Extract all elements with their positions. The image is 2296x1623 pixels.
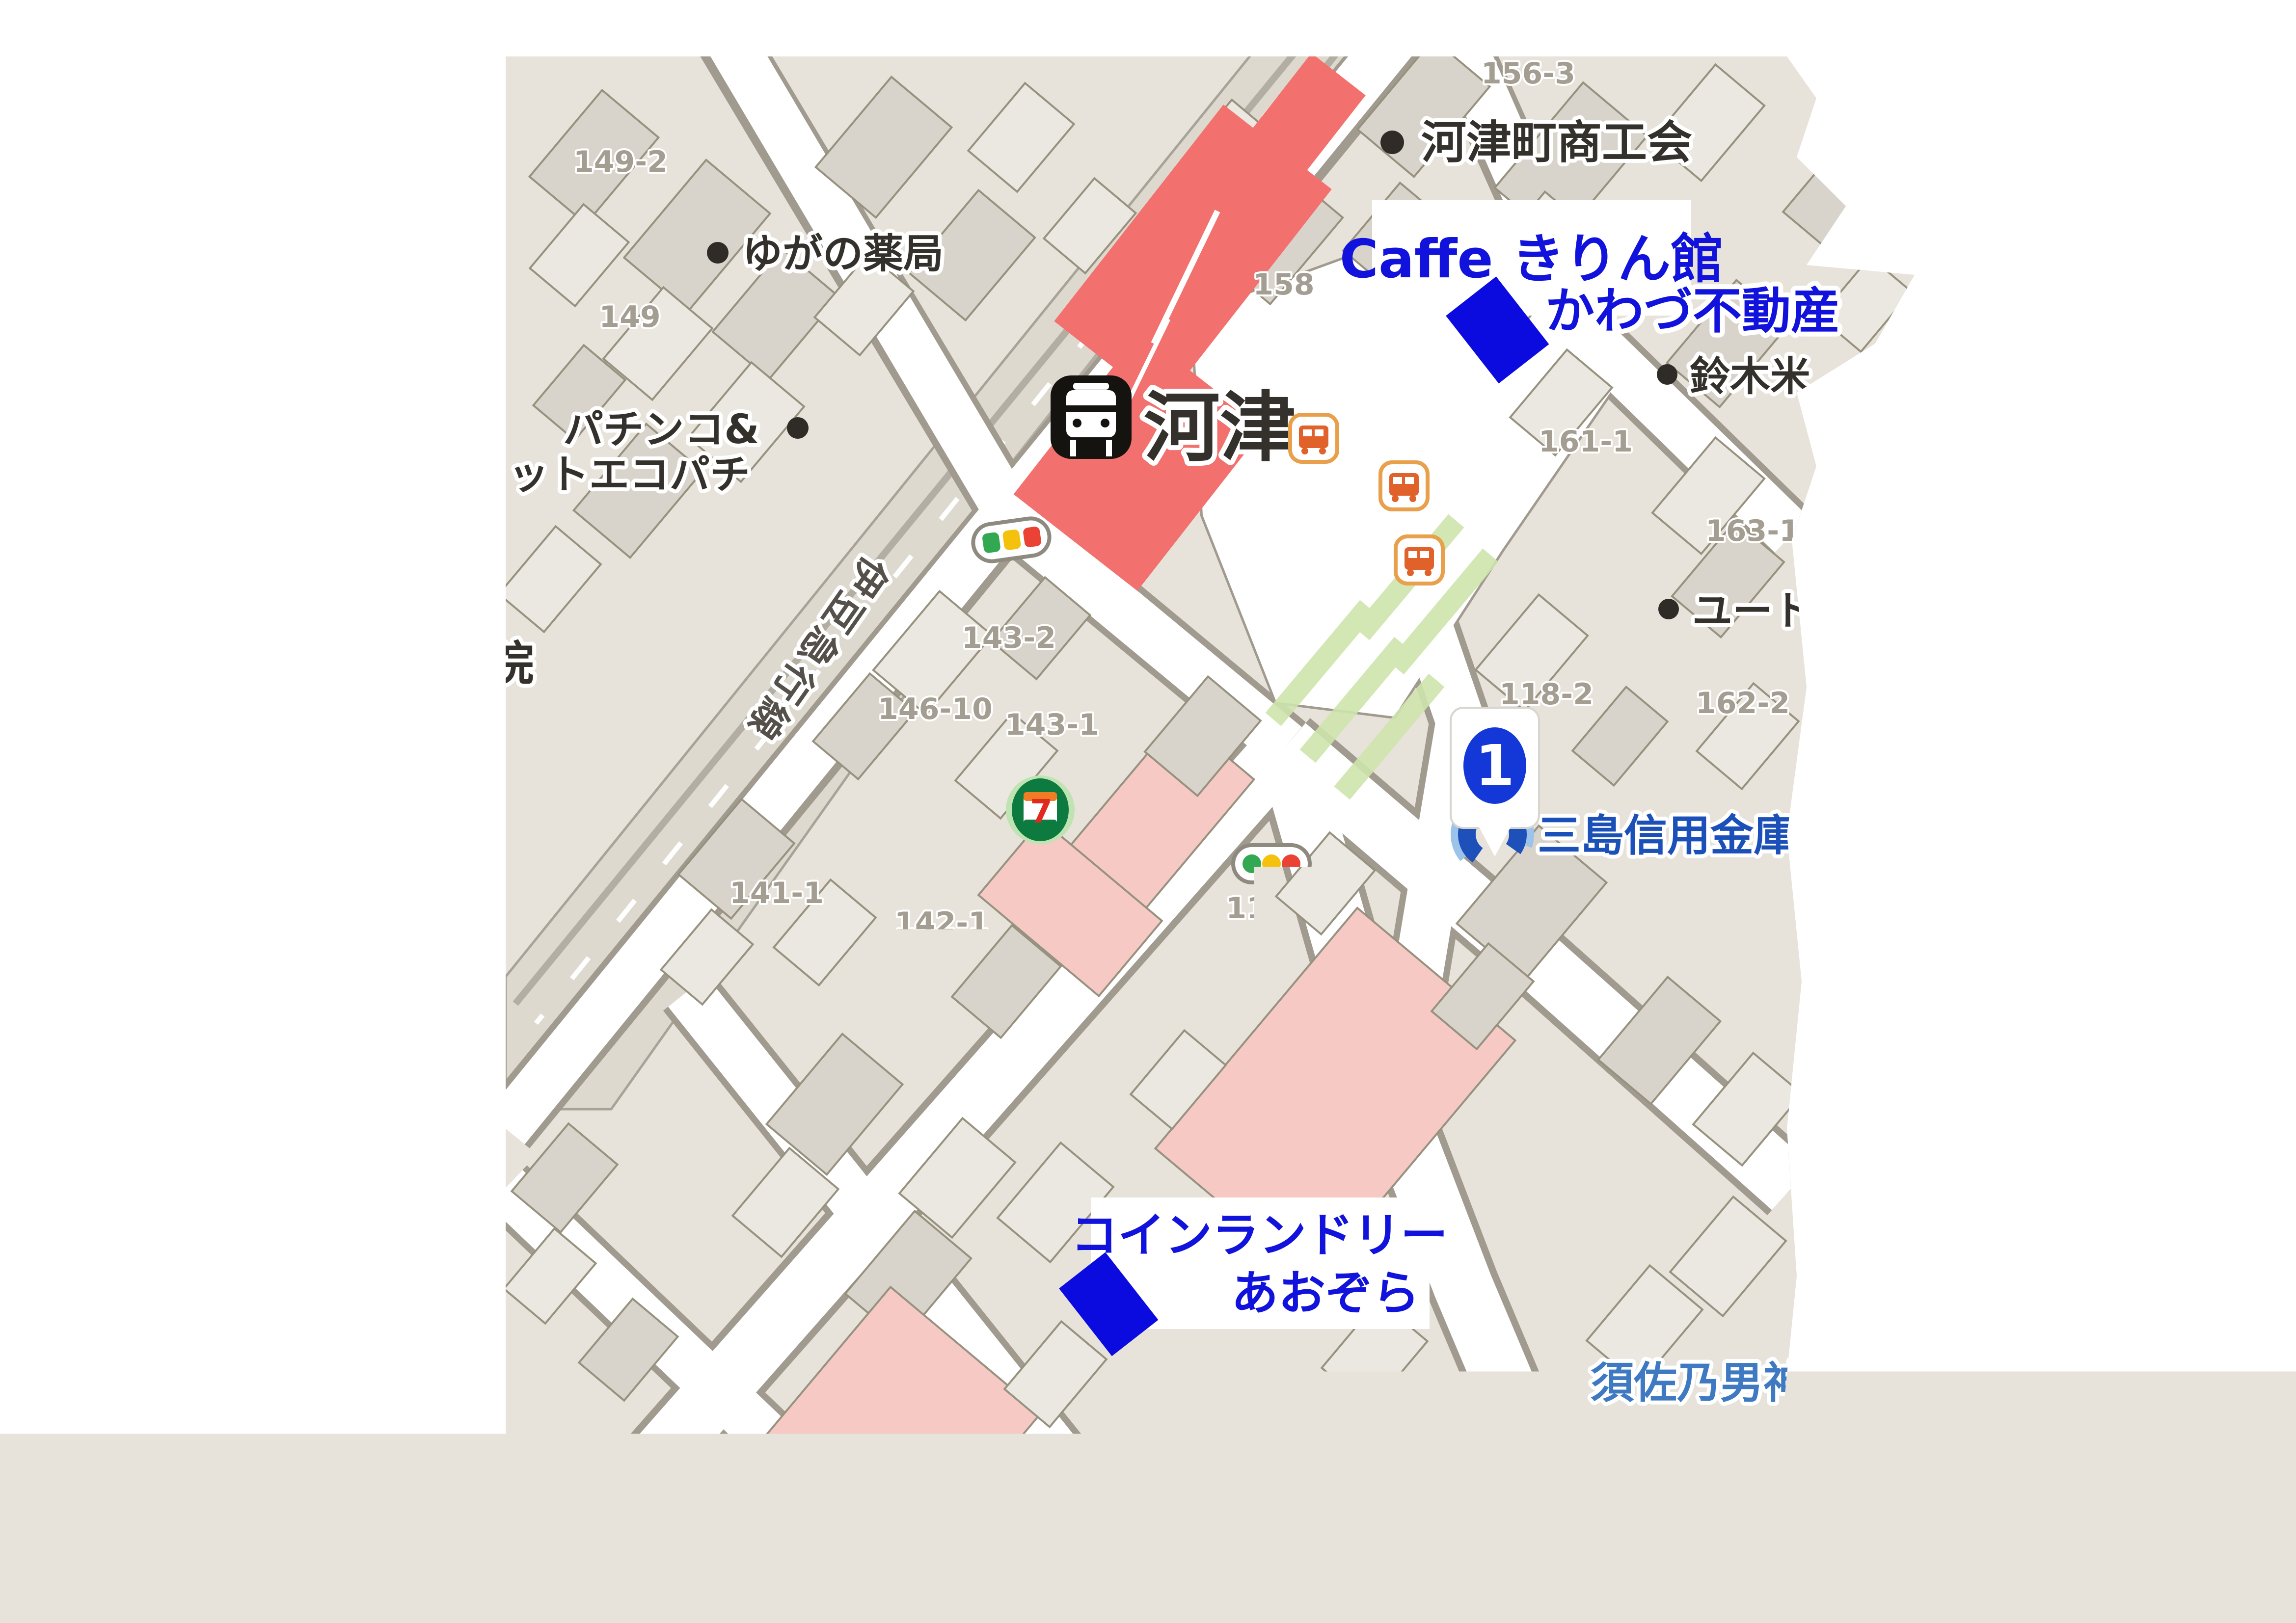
lot-label: 81-3 <box>609 1483 682 1517</box>
annotation-kawazu-fudosan[interactable]: かわづ不動産 <box>1545 282 1840 340</box>
lot-label: 156-3 <box>1481 56 1575 91</box>
cart-icon <box>1218 1046 1271 1099</box>
lot-label: 113 <box>1226 891 1287 926</box>
lot-label: 114 <box>1265 954 1326 988</box>
store-label-maxvalu-1[interactable]: マックスバリュ <box>707 1077 1022 1130</box>
poi-dot-icon <box>1657 364 1677 385</box>
lot-label: 162-2 <box>1696 686 1790 720</box>
seven-eleven-icon[interactable]: 7 <box>1006 775 1075 844</box>
station-poi[interactable]: 河津 <box>1051 375 1296 472</box>
lot-label: 118-2 <box>1499 677 1594 712</box>
poi-dot-icon <box>1658 599 1679 619</box>
lot-label: 158 <box>1253 267 1314 302</box>
bus-stop-icon <box>1396 536 1443 584</box>
lot-label: 146-10 <box>878 692 993 726</box>
annotation-laundry-1[interactable]: コインランドリー <box>1071 1208 1448 1263</box>
map-canvas: 156-3 149-2 149 158 161-1 163-1 162-2 11… <box>0 0 2296 1623</box>
lot-label: 109-6 <box>1093 1119 1188 1153</box>
lot-label: 26-2 <box>1622 1495 1696 1529</box>
store-label-foodstore-aoki[interactable]: フードストアあおき <box>1282 1048 1689 1100</box>
lot-label: 163-1 <box>1705 514 1800 548</box>
lot-label: 93-2 <box>532 1282 605 1316</box>
lot-label: 143-2 <box>962 621 1056 655</box>
annotation-laundry-2[interactable]: あおぞら <box>1231 1266 1420 1321</box>
lot-label: 141-1 <box>729 876 824 910</box>
lot-label: 302-2 <box>1708 1206 1803 1240</box>
station-name-label[interactable]: 河津 <box>1144 383 1296 472</box>
lot-label: 149-2 <box>573 145 668 179</box>
lot-label: 95-2 <box>1092 1561 1166 1595</box>
poi-dot-icon <box>787 417 809 439</box>
poi-label-hama: 浜 <box>702 1233 748 1287</box>
poi-label-shokokai[interactable]: 河津町商工会 <box>1421 116 1692 169</box>
lot-label: 149 <box>599 300 660 334</box>
bus-stop-icon <box>1290 415 1337 462</box>
lot-label: 108 <box>1382 1396 1443 1431</box>
poi-label-yuto[interactable]: ユート <box>1692 588 1813 635</box>
poi-label-pachinko-1[interactable]: パチンコ& <box>563 406 759 453</box>
lot-label: 142-1 <box>894 906 989 940</box>
poi-label-suzuki-milk[interactable]: 鈴木牛乳店 <box>1599 975 1801 1022</box>
screenshot-page: { "map": { "type": "annotated-street-map… <box>0 0 2296 1623</box>
lot-label: 93-7 <box>542 1179 616 1213</box>
store-label-maxvalu-2[interactable]: エクスプレス <box>687 1136 957 1189</box>
poi-dot-icon <box>1566 986 1586 1007</box>
lot-label: 161-1 <box>1539 425 1633 459</box>
poi-label-yugano-pharmacy[interactable]: ゆがの薬局 <box>742 231 944 277</box>
bus-stop-icon <box>1380 462 1428 509</box>
marker-1-number: 1 <box>1475 733 1514 799</box>
lot-label: 109-2 <box>1386 1481 1481 1515</box>
poi-label-pachinko-2[interactable]: ットエコパチ <box>509 452 750 498</box>
svg-text:7: 7 <box>1030 793 1053 830</box>
poi-label-suzuki-rice[interactable]: 鈴木米 <box>1690 353 1810 400</box>
annotation-caffe-kirin[interactable]: Caffe きりん館 <box>1340 229 1724 290</box>
traffic-light-icon <box>1233 845 1310 882</box>
cart-icon <box>859 1393 912 1446</box>
cart-icon <box>642 1076 695 1129</box>
poi-dot-icon <box>1380 131 1404 154</box>
store-label-welcia[interactable]: ウエルシア <box>921 1394 1147 1446</box>
poi-dot-icon <box>707 242 729 264</box>
torii-icon <box>1518 1351 1579 1412</box>
lot-label: 143-1 <box>1005 708 1099 742</box>
